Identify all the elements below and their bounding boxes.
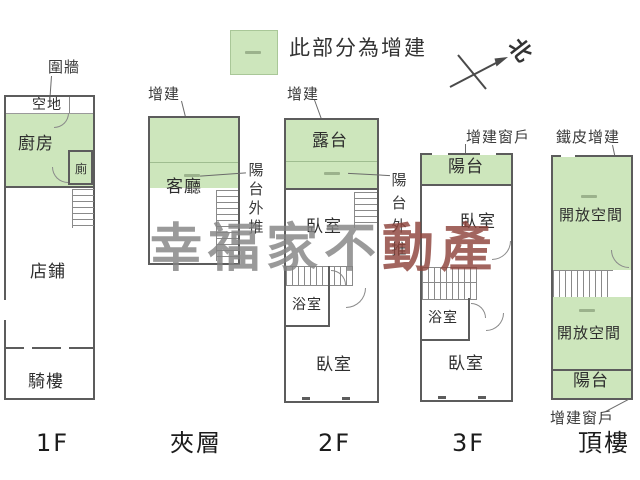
wall-tick	[302, 397, 310, 400]
addition-inner-line	[286, 161, 377, 162]
interior-wall	[286, 325, 328, 327]
wall-opening	[4, 300, 6, 320]
area-note-mark	[245, 51, 261, 54]
floor-name-roof: 頂樓	[578, 430, 630, 458]
area-note-mark	[579, 309, 595, 312]
stair-mid-line	[422, 282, 477, 283]
wall-opening	[61, 347, 69, 349]
compass-north-label: 北	[503, 34, 536, 67]
watermark-text-gray: 幸福家不	[150, 219, 382, 279]
fence-label: 圍牆	[48, 59, 80, 76]
room-label-balcony: 陽台	[448, 158, 484, 178]
north-compass: 北	[438, 25, 548, 100]
fence-leader-line	[50, 76, 52, 95]
room-label-bathroom: 浴室	[428, 310, 458, 326]
room-label-bedroom-lower: 臥室	[448, 355, 484, 375]
agency-watermark: 幸福家不動產	[150, 206, 498, 281]
room-label-living: 客廳	[166, 178, 202, 198]
door-arc	[486, 313, 504, 331]
floor-name-3f: 3F	[452, 430, 485, 458]
area-note-mark	[324, 172, 340, 175]
added-window-label-3f: 增建窗戶	[466, 129, 530, 146]
door-arc	[471, 303, 486, 318]
area-note-mark	[581, 195, 597, 198]
room-label-vacant: 空地	[32, 97, 62, 113]
compass-arrow-head	[495, 57, 509, 67]
room-label-roof-balcony: 陽台	[573, 372, 609, 392]
room-label-bathroom: 浴室	[292, 297, 322, 313]
window-opening	[480, 153, 496, 155]
floor-name-1f: 1F	[36, 430, 69, 458]
room-label-terrace: 露台	[312, 132, 348, 152]
addition-inner-line	[150, 162, 238, 163]
room-label-bedroom-lower: 臥室	[316, 356, 352, 376]
window-opening	[432, 153, 448, 155]
wall-tick	[478, 396, 486, 399]
watermark-text-red: 動產	[382, 219, 498, 279]
added-window-label-roof: 增建窗戶	[550, 410, 614, 427]
room-label-open-space-lower: 開放空間	[557, 325, 621, 342]
floor-name-mezzanine: 夾層	[170, 430, 222, 458]
room-label-toilet: 廁	[75, 163, 87, 177]
interior-wall	[468, 298, 470, 341]
addition-label-mezzanine: 增建	[148, 86, 180, 103]
compass-arrow-shaft	[450, 63, 496, 87]
wall-tick	[438, 396, 446, 399]
compass-cross-line	[458, 55, 486, 89]
toilet-room: 廁	[68, 150, 93, 185]
room-label-kitchen: 廚房	[18, 135, 54, 155]
floor-name-2f: 2F	[318, 430, 351, 458]
interior-wall	[6, 347, 93, 349]
door-arc	[346, 288, 366, 308]
wall-stub	[69, 97, 70, 113]
floor-plan-roof: 開放空間 開放空間 陽台	[551, 155, 633, 400]
room-label-open-space-upper: 開放空間	[559, 207, 623, 224]
room-label-arcade: 騎樓	[28, 373, 64, 393]
room-label-shop: 店鋪	[30, 263, 66, 283]
metal-addition-label: 鐵皮增建	[556, 129, 620, 146]
floorplan-image: 此部分為增建 北 幸福家不動產 圍牆 空地 廚房 廁 店鋪 騎樓 1F 增建	[0, 0, 640, 480]
floor-plan-1f: 空地 廚房 廁 店鋪 騎樓	[4, 95, 95, 400]
added-window-leader-line	[605, 399, 628, 412]
wall-tick	[342, 397, 350, 400]
stairs	[553, 270, 613, 299]
legend-note: 此部分為增建	[289, 36, 427, 60]
wall-opening	[24, 347, 32, 349]
window-opening	[561, 155, 575, 157]
stairs	[72, 189, 94, 228]
legend-addition-swatch	[230, 30, 278, 75]
interior-wall	[422, 339, 468, 341]
